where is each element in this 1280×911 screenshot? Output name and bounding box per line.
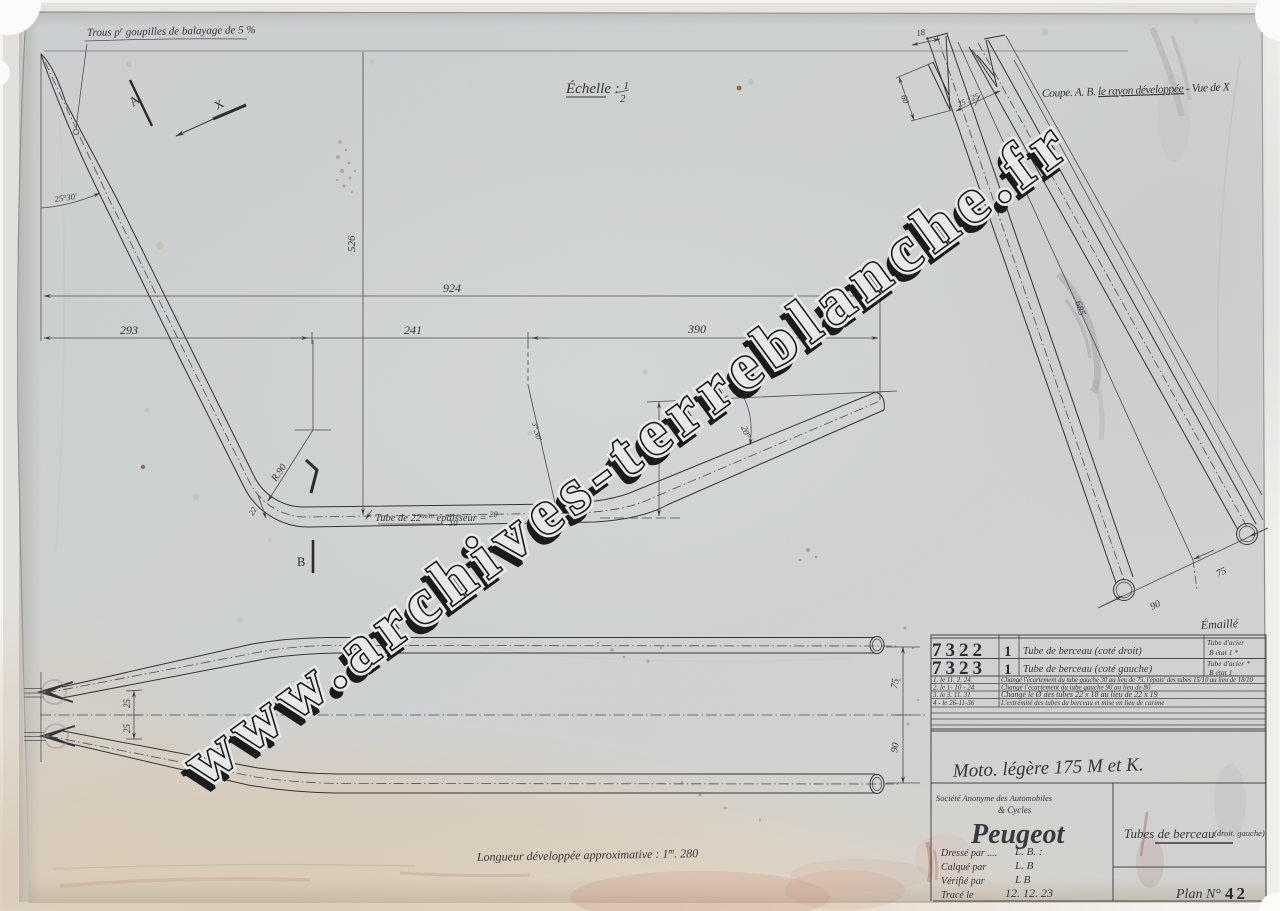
svg-text:Vérifié par: Vérifié par [941,876,985,887]
svg-text:1: 1 [1004,644,1012,660]
svg-text:(droit. gauche): (droit. gauche) [1214,828,1265,838]
svg-text:2: 2 [620,93,626,105]
svg-text:Tube de berceau (coté gauche): Tube de berceau (coté gauche) [1023,664,1153,675]
svg-text:L B: L B [1014,874,1031,886]
svg-text:Plan N°: Plan N° [1175,887,1221,902]
svg-text:4 - le 26-11-36: 4 - le 26-11-36 [933,699,975,707]
svg-text:B état 1 *: B état 1 * [1209,648,1238,657]
svg-text:241: 241 [404,323,422,337]
svg-text:Émaillé: Émaillé [1199,616,1239,632]
svg-text:& Cycles: & Cycles [998,805,1032,815]
svg-text:Société Anonyme des Automobile: Société Anonyme des Automobiles [936,793,1053,803]
svg-text:25: 25 [122,724,132,734]
svg-text:75: 75 [889,678,902,690]
svg-text:B: B [297,555,305,569]
svg-text:L. B: L. B [1014,860,1034,872]
svg-text:10: 10 [449,518,458,528]
svg-text:Tube d'acier: Tube d'acier [1207,638,1244,647]
svg-text:Tubes de berceau: Tubes de berceau [1124,826,1215,841]
svg-text:924: 924 [443,281,461,295]
svg-text:Changé le Ø des tubes 22 x 18: Changé le Ø des tubes 22 x 18 au lieu de… [1001,690,1158,699]
svg-text:90: 90 [889,742,902,754]
svg-text:3. le 3. 11. 31: 3. le 3. 11. 31 [932,691,971,699]
svg-text:12. 12. 23: 12. 12. 23 [1005,886,1053,900]
svg-text:25: 25 [122,699,132,709]
svg-text:390: 390 [687,322,706,336]
svg-text:42: 42 [1225,884,1248,903]
svg-text:Tube de berceau (coté droit): Tube de berceau (coté droit) [1023,646,1142,657]
svg-text:L'extrémité des tubes du berce: L'extrémité des tubes du berceau et mise… [1000,699,1164,707]
svg-text:Tube d'acier *: Tube d'acier * [1207,659,1250,668]
svg-text:Dressé par ....: Dressé par .... [940,848,997,859]
svg-text:Tracé le: Tracé le [941,890,974,901]
svg-text:L. B. :: L. B. : [1014,846,1043,858]
svg-text:293: 293 [120,323,138,337]
svg-text:526: 526 [346,235,358,252]
svg-text:Calqué par: Calqué par [941,862,986,873]
